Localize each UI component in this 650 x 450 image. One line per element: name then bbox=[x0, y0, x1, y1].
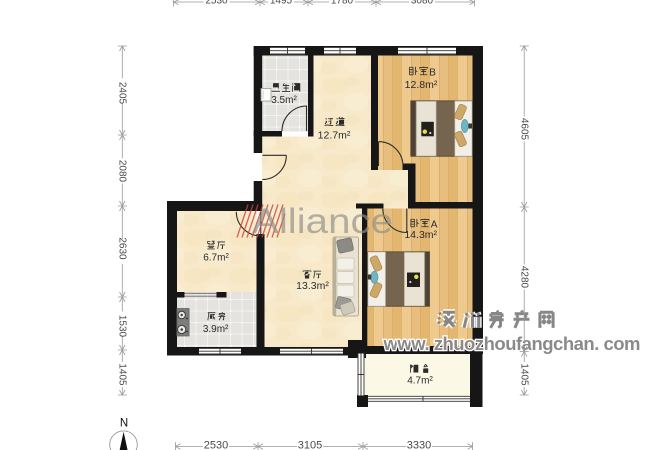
svg-text:3.5m²: 3.5m² bbox=[271, 95, 297, 106]
svg-text:N: N bbox=[120, 418, 128, 430]
svg-text:13.3m²: 13.3m² bbox=[296, 280, 329, 292]
svg-text:2630: 2630 bbox=[117, 237, 128, 260]
svg-text:4605: 4605 bbox=[519, 118, 530, 141]
svg-text:1405: 1405 bbox=[519, 363, 530, 386]
svg-text:1495: 1495 bbox=[270, 0, 293, 6]
svg-text:12.7m²: 12.7m² bbox=[318, 130, 351, 142]
svg-text:1405: 1405 bbox=[117, 363, 128, 386]
svg-text:3.9m²: 3.9m² bbox=[203, 324, 229, 335]
svg-text:1780: 1780 bbox=[331, 0, 354, 6]
svg-text:2405: 2405 bbox=[117, 82, 128, 105]
svg-text:1530: 1530 bbox=[117, 315, 128, 338]
svg-text:4280: 4280 bbox=[519, 266, 530, 289]
svg-text:14.3m²: 14.3m² bbox=[404, 229, 437, 241]
svg-text:2530: 2530 bbox=[205, 0, 228, 6]
svg-text:3105: 3105 bbox=[298, 440, 322, 450]
svg-text:2080: 2080 bbox=[117, 160, 128, 183]
svg-text:www. zhuozhoufangchan. com: www. zhuozhoufangchan. com bbox=[383, 333, 641, 354]
svg-text:Alliance: Alliance bbox=[252, 202, 393, 241]
svg-text:12.8m²: 12.8m² bbox=[405, 79, 438, 91]
svg-text:3330: 3330 bbox=[407, 440, 431, 450]
svg-text:2530: 2530 bbox=[204, 440, 228, 450]
svg-text:B: B bbox=[429, 68, 436, 79]
svg-text:4.7m²: 4.7m² bbox=[407, 376, 433, 387]
svg-text:3080: 3080 bbox=[411, 0, 434, 6]
svg-text:6.7m²: 6.7m² bbox=[203, 253, 229, 264]
